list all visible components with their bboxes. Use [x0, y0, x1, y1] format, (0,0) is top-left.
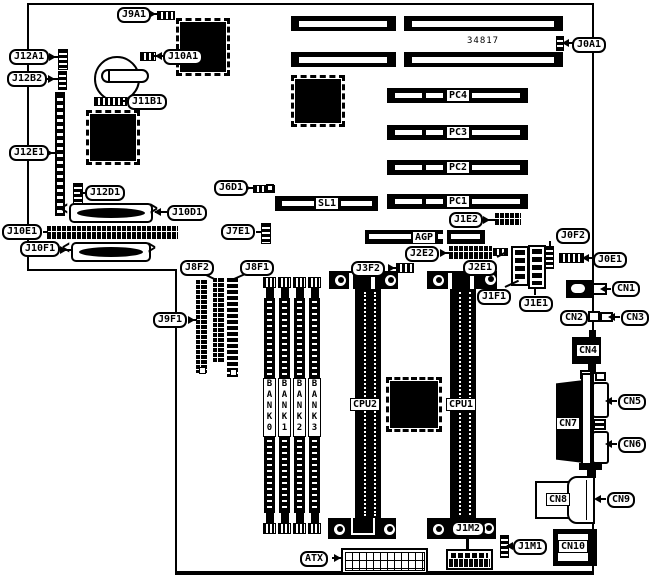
part-number: 34817 — [467, 36, 499, 46]
dimm-latch — [311, 513, 319, 523]
pointer — [549, 241, 551, 247]
pointer — [534, 287, 536, 295]
bank-label-2: BANK2 — [293, 378, 306, 437]
slot-label-cpu2: CPU2 — [350, 398, 380, 411]
connector-j1m2 — [446, 549, 493, 570]
isa-slot — [291, 16, 396, 31]
agp-pad — [438, 234, 443, 239]
connector-j12b2 — [58, 71, 67, 90]
dimm-bottom-latch — [278, 523, 291, 534]
callout-j1e1: J1E1 — [519, 296, 553, 312]
callout-atx: ATX — [300, 551, 328, 567]
connector-j8f1-key — [230, 369, 237, 376]
callout-j9a1: J9A1 — [117, 7, 151, 23]
connector-j8f2 — [213, 278, 224, 362]
pointer-arrow — [600, 285, 607, 293]
callout-j11b1: J11B1 — [127, 94, 167, 110]
dimm-top-latch — [293, 277, 306, 288]
callout-j2e2: J2E2 — [405, 246, 439, 262]
pointer-arrow — [48, 75, 55, 83]
pointer-arrow — [60, 246, 67, 254]
callout-cn10: CN10 — [558, 540, 588, 553]
cn4-stub-top — [589, 330, 596, 337]
slot-agp-seg2 — [447, 230, 485, 244]
bank-label-0: BANK0 — [263, 378, 276, 437]
callout-j10f1: J10F1 — [20, 241, 60, 257]
dimm-latch — [311, 288, 319, 298]
dimm-top-latch — [278, 277, 291, 288]
connector-j2e2 — [449, 246, 492, 259]
isa-slot — [291, 52, 396, 67]
callout-j12e1: J12E1 — [9, 145, 49, 161]
dimm-latch — [296, 513, 304, 523]
dimm-latch — [296, 288, 304, 298]
callout-j6d1: J6D1 — [214, 180, 248, 196]
pointer-arrow — [605, 440, 612, 448]
connector-j9a1 — [157, 11, 175, 20]
connector-j9f1-key — [199, 367, 206, 374]
callout-cn6: CN6 — [618, 437, 646, 453]
connector-j1e2 — [495, 213, 521, 225]
connector-j1f1-header — [511, 246, 529, 286]
slot-label-pc3: PC3 — [446, 126, 470, 139]
dimm-pins — [297, 301, 302, 375]
connector-cn1 — [566, 280, 592, 298]
connector-j7e1 — [261, 223, 271, 244]
connector-j1e1-header — [528, 245, 546, 289]
pointer-arrow — [49, 53, 56, 61]
callout-j12d1: J12D1 — [85, 185, 125, 201]
bracket-icon: < — [60, 200, 68, 221]
callout-j0a1: J0A1 — [572, 37, 606, 53]
bracket-icon: > — [148, 239, 156, 260]
callout-j0f2: J0F2 — [556, 228, 590, 244]
cn7-pad — [595, 372, 606, 381]
dimm-bottom-latch — [263, 523, 276, 534]
callout-cn5: CN5 — [618, 394, 646, 410]
bank-label-3: BANK3 — [308, 378, 321, 437]
pointer-arrow — [388, 264, 395, 272]
slot-label-pc2: PC2 — [446, 161, 470, 174]
connector-j9f1 — [196, 280, 207, 373]
callout-j1e2: J1E2 — [449, 212, 483, 228]
chip — [176, 18, 230, 76]
connector-j12a1 — [58, 49, 68, 70]
pointer-j1m2 — [466, 537, 469, 549]
callout-j9f1: J9F1 — [153, 312, 187, 328]
motherboard-diagram: 34817 < > < > — [0, 0, 654, 578]
callout-cn3: CN3 — [621, 310, 649, 326]
callout-cn9: CN9 — [607, 492, 635, 508]
callout-cn8: CN8 — [546, 493, 570, 506]
dimm-pins — [282, 440, 287, 510]
pointer-arrow — [605, 397, 612, 405]
pointer-arrow — [594, 495, 601, 503]
connector-atx — [341, 548, 428, 574]
callout-j3f2: J3F2 — [351, 261, 385, 277]
pointer-arrow — [483, 216, 490, 224]
board-edge-step — [27, 269, 177, 271]
callout-j1m1: J1M1 — [513, 539, 547, 555]
callout-j10a1: J10A1 — [163, 49, 203, 65]
connector-j10d1 — [69, 203, 153, 223]
cn7-flange — [581, 373, 592, 468]
cn7-bottom — [579, 463, 602, 470]
callout-j10e1: J10E1 — [2, 224, 42, 240]
dimm-latch — [281, 288, 289, 298]
dimm-pins — [267, 440, 272, 510]
slot-label-agp: AGP — [412, 231, 436, 244]
dimm-pins — [312, 301, 317, 375]
chip — [291, 75, 345, 127]
connector-j0e1 — [559, 253, 584, 263]
connector-j8f1 — [227, 278, 238, 377]
isa-slot — [404, 52, 563, 67]
dimm-pins — [297, 440, 302, 510]
tiny-pad — [266, 184, 274, 192]
pointer-arrow — [188, 316, 195, 324]
connector-j3f2 — [396, 263, 414, 273]
dimm-top-latch — [263, 277, 276, 288]
connector-cn8-port — [567, 476, 595, 524]
callout-j8f2: J8F2 — [180, 260, 214, 276]
chip — [386, 377, 442, 432]
slot-label-pc1: PC1 — [446, 195, 470, 208]
callout-j1m2: J1M2 — [451, 521, 485, 537]
pointer-arrow — [154, 208, 161, 216]
pointer-arrow — [608, 313, 615, 321]
chip — [86, 110, 140, 165]
board-edge-top — [27, 3, 594, 5]
pointer-arrow — [506, 542, 513, 550]
callout-cn7: CN7 — [556, 417, 580, 430]
pointer-arrow — [155, 52, 162, 60]
connector-cn2 — [588, 311, 600, 322]
callout-j7e1: J7E1 — [221, 224, 255, 240]
dimm-pins — [267, 301, 272, 375]
callout-j1f1: J1F1 — [477, 289, 511, 305]
pointer-arrow — [440, 249, 447, 257]
battery-tick — [108, 71, 110, 81]
cn7-pad — [593, 424, 606, 430]
callout-cn1: CN1 — [612, 281, 640, 297]
pointer — [43, 231, 48, 233]
dimm-latch — [266, 288, 274, 298]
pointer — [256, 231, 262, 233]
slot-label-pc4: PC4 — [446, 89, 470, 102]
dimm-top-latch — [308, 277, 321, 288]
bank-label-1: BANK1 — [278, 378, 291, 437]
connector-j0f2 — [545, 246, 554, 269]
dimm-bottom-latch — [293, 523, 306, 534]
pointer-arrow — [562, 39, 569, 47]
dimm-latch — [281, 513, 289, 523]
callout-j8f1: J8F1 — [240, 260, 274, 276]
callout-j12a1: J12A1 — [9, 49, 49, 65]
dimm-latch — [266, 513, 274, 523]
callout-j10d1: J10D1 — [167, 205, 207, 221]
dimm-pins — [312, 440, 317, 510]
isa-slot — [404, 16, 563, 31]
callout-cn4: CN4 — [576, 344, 600, 357]
dimm-bottom-latch — [308, 523, 321, 534]
pointer-arrow — [582, 254, 589, 262]
slot-label-sl1: SL1 — [315, 197, 339, 210]
connector-j10f1 — [71, 242, 151, 262]
callout-j12b2: J12B2 — [7, 71, 47, 87]
callout-j0e1: J0E1 — [593, 252, 627, 268]
cpu2-bottom-bracket — [328, 518, 396, 539]
pointer-arrow — [334, 554, 341, 562]
dimm-pins — [282, 301, 287, 375]
callout-j2e1: J2E1 — [463, 260, 497, 276]
slot-label-cpu1: CPU1 — [446, 398, 476, 411]
callout-cn2: CN2 — [560, 310, 588, 326]
